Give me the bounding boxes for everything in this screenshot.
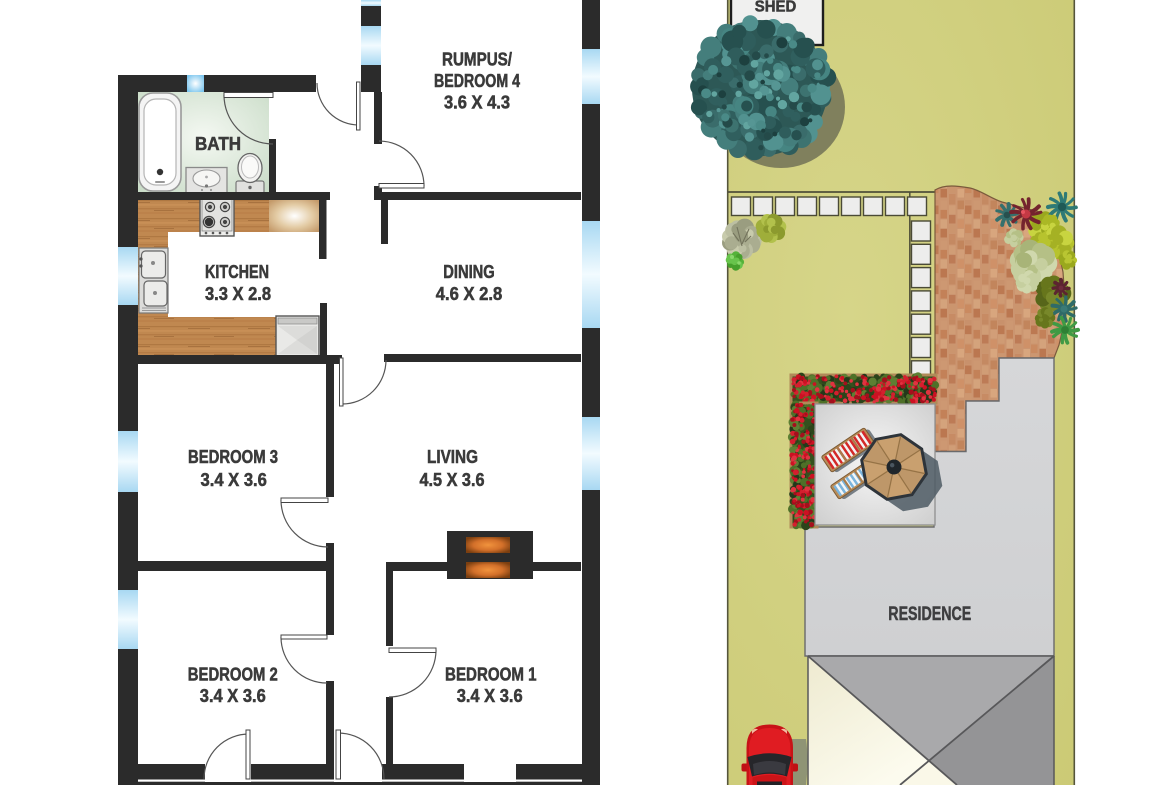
svg-text:RUMPUS/: RUMPUS/ bbox=[442, 50, 512, 70]
svg-text:BEDROOM 3: BEDROOM 3 bbox=[188, 447, 278, 467]
svg-text:SHED: SHED bbox=[755, 0, 797, 16]
svg-text:3.4 X 3.6: 3.4 X 3.6 bbox=[200, 686, 266, 706]
svg-text:4.5 X 3.6: 4.5 X 3.6 bbox=[420, 470, 485, 490]
svg-text:3.4 X 3.6: 3.4 X 3.6 bbox=[457, 686, 523, 706]
svg-text:RESIDENCE: RESIDENCE bbox=[888, 604, 971, 625]
svg-text:BATH: BATH bbox=[195, 134, 241, 154]
svg-text:DINING: DINING bbox=[443, 262, 495, 282]
svg-text:BEDROOM 2: BEDROOM 2 bbox=[188, 665, 278, 685]
svg-text:BEDROOM 4: BEDROOM 4 bbox=[434, 71, 520, 91]
svg-text:LIVING: LIVING bbox=[427, 447, 478, 467]
svg-text:KITCHEN: KITCHEN bbox=[205, 262, 269, 282]
svg-text:3.3 X 2.8: 3.3 X 2.8 bbox=[205, 284, 271, 304]
svg-text:BEDROOM 1: BEDROOM 1 bbox=[445, 665, 537, 685]
svg-text:4.6 X 2.8: 4.6 X 2.8 bbox=[436, 284, 503, 304]
svg-text:3.4 X 3.6: 3.4 X 3.6 bbox=[201, 470, 267, 490]
svg-text:3.6 X 4.3: 3.6 X 4.3 bbox=[444, 93, 510, 113]
